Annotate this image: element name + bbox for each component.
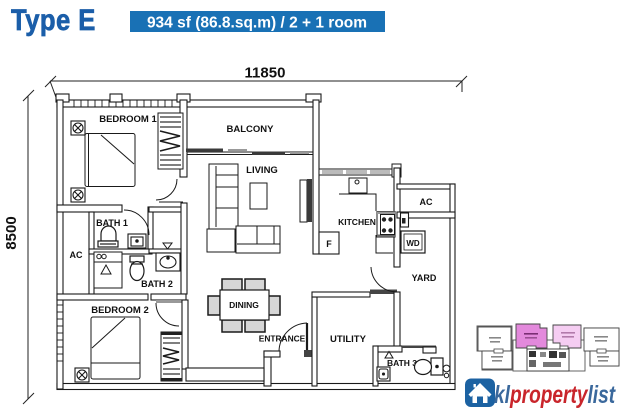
- svg-text:11850: 11850: [245, 65, 286, 82]
- svg-text:934 sf (86.8.sq.m) / 2 + 1 roo: 934 sf (86.8.sq.m) / 2 + 1 room: [147, 15, 367, 32]
- svg-text:YARD: YARD: [412, 273, 437, 283]
- svg-text:AC: AC: [70, 250, 83, 260]
- svg-text:LIVING: LIVING: [246, 165, 278, 176]
- svg-text:BEDROOM 2: BEDROOM 2: [91, 305, 149, 316]
- svg-text:BALCONY: BALCONY: [227, 124, 275, 135]
- svg-text:UTILITY: UTILITY: [330, 334, 367, 345]
- svg-text:klpropertylist: klpropertylist: [494, 381, 616, 409]
- svg-text:Type E: Type E: [11, 3, 96, 36]
- svg-text:BATH 3: BATH 3: [387, 358, 417, 368]
- svg-text:AC: AC: [420, 197, 433, 207]
- svg-text:BATH 2: BATH 2: [141, 279, 173, 289]
- svg-text:F: F: [326, 239, 332, 249]
- svg-text:WD: WD: [406, 239, 420, 248]
- svg-text:8500: 8500: [3, 216, 20, 249]
- svg-text:DINING: DINING: [229, 300, 259, 310]
- svg-text:KITCHEN: KITCHEN: [338, 217, 376, 227]
- svg-text:BEDROOM 1: BEDROOM 1: [99, 114, 157, 125]
